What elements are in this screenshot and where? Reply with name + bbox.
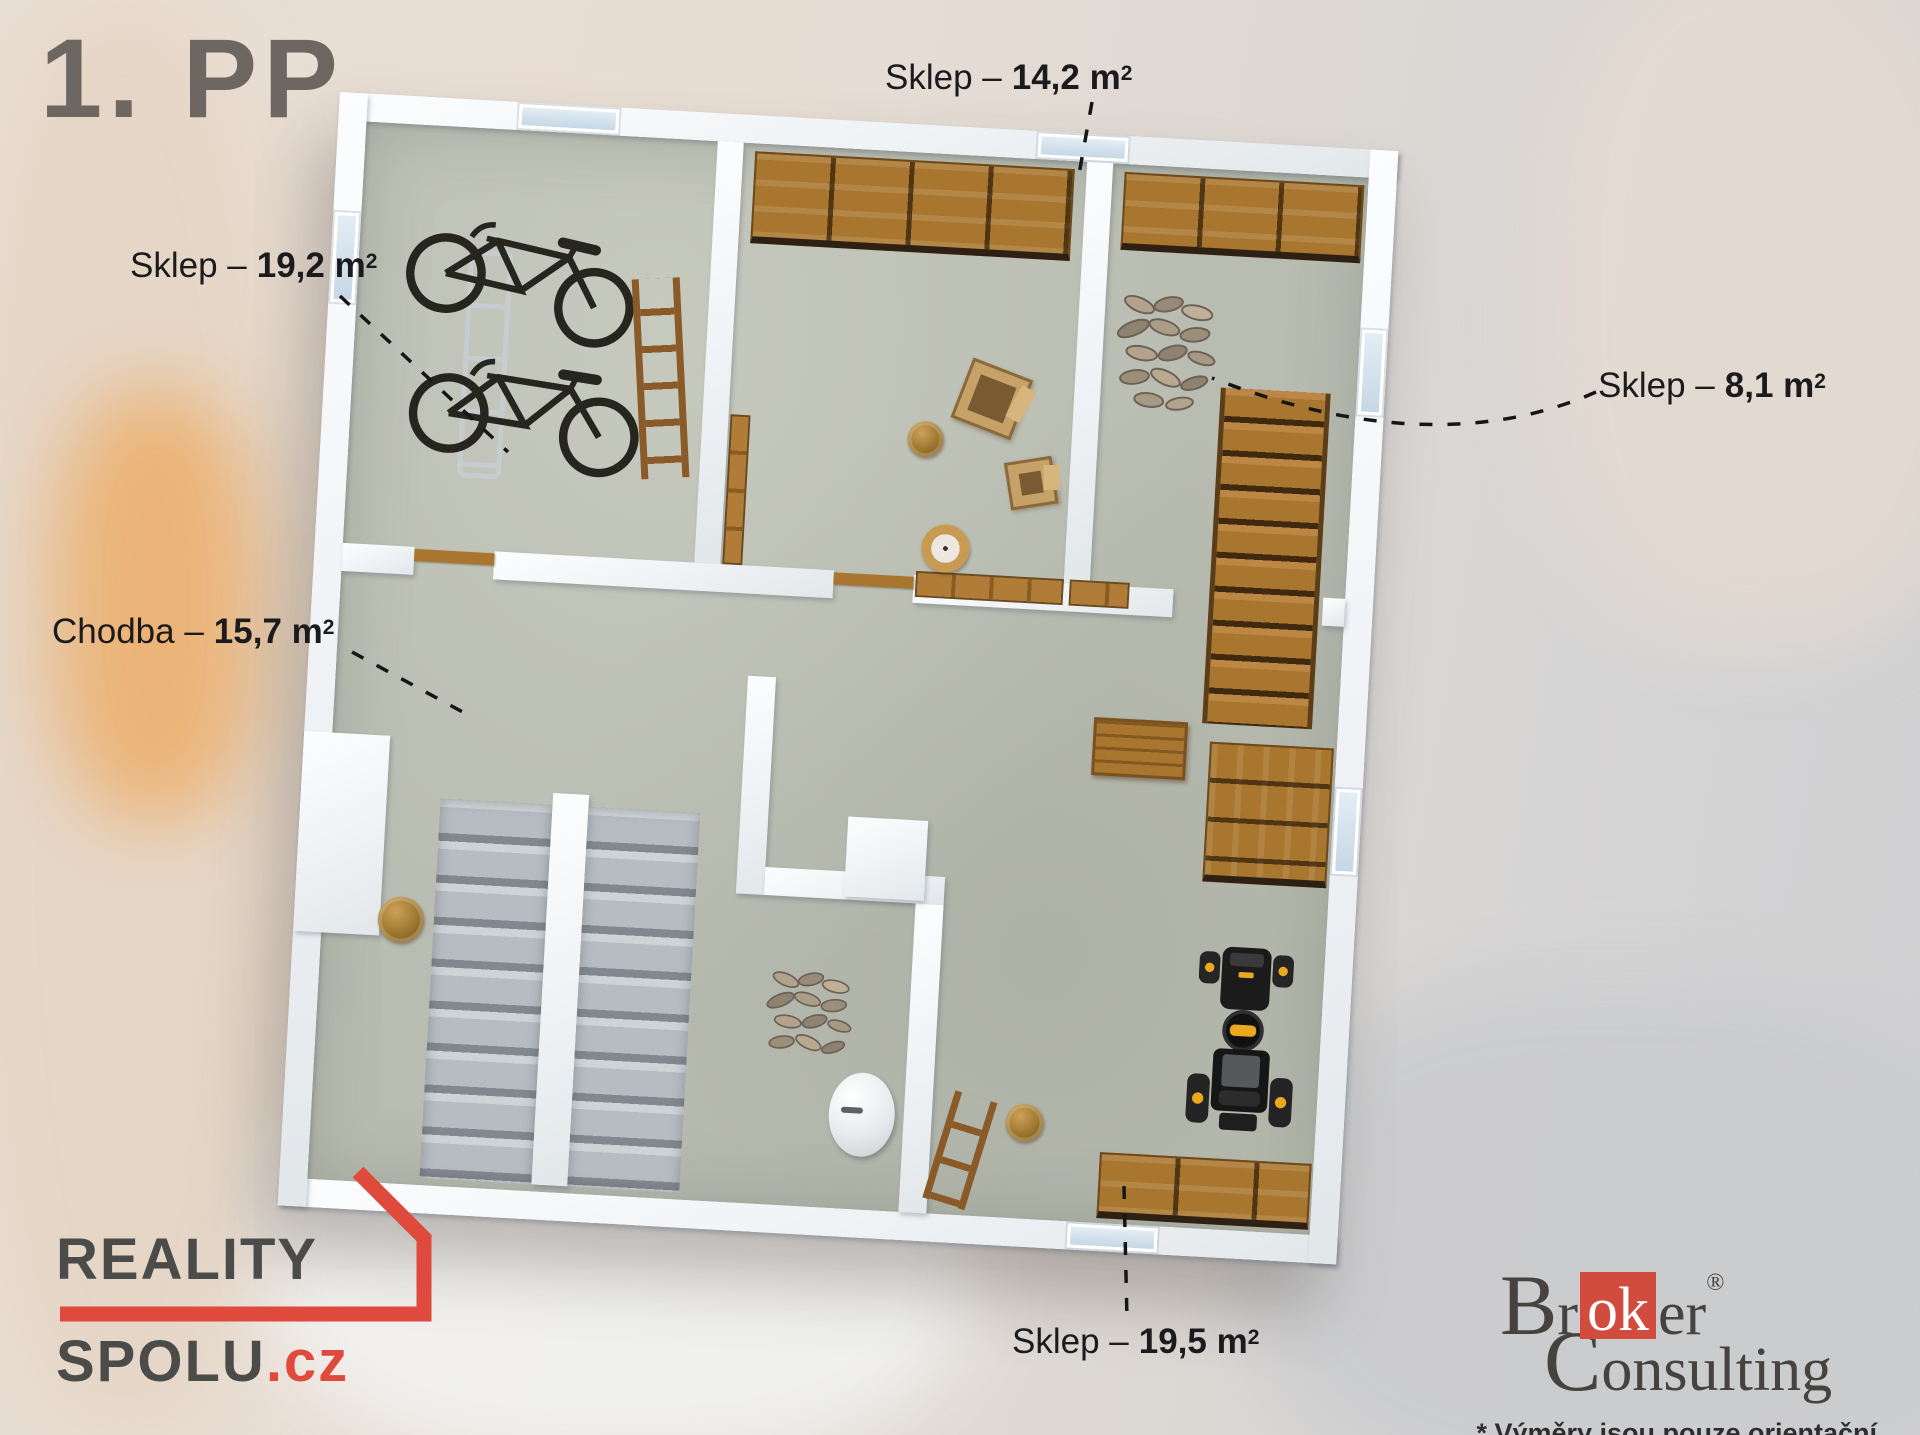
floor-plan [278, 92, 1399, 1264]
room-area-sup: 2 [1814, 370, 1826, 393]
box-flap [1043, 465, 1059, 490]
registered-mark: ® [1706, 1270, 1724, 1296]
concrete-stairs-flight [567, 807, 700, 1193]
wooden-crate [1091, 717, 1188, 780]
background-blur-beige [1540, 0, 1920, 640]
background-blur-orange [55, 390, 255, 820]
disclaimer-text: * Výměry jsou pouze orientační. [1448, 1418, 1913, 1435]
box-cavity [1019, 471, 1044, 496]
wall-middle-4 [1322, 598, 1346, 627]
concrete-stairs-flight [419, 799, 552, 1185]
reality-spolu-logo: REALITY SPOLU.cz [52, 1222, 472, 1422]
spolu-text: SPOLU [56, 1329, 266, 1394]
shelf-unit [750, 151, 1075, 261]
room-area: 14,2 m [1012, 58, 1121, 97]
room-name: Sklep – [130, 246, 247, 285]
room-label-sklep-14-2: Sklep –14,2 m2 [885, 58, 1132, 98]
room-area-sup: 2 [1248, 1326, 1260, 1349]
window [1332, 789, 1361, 875]
shelf-unit [1202, 742, 1334, 889]
spolu-wordmark: SPOLU.cz [56, 1328, 349, 1395]
floorplan-screenshot: 1. PP Sklep –19,2 m2 Sklep –14,2 m2 Skle… [0, 0, 1920, 1435]
room-name: Chodba – [52, 612, 204, 651]
shelf-unit [1096, 1152, 1311, 1230]
lawn-tractor-icon [1181, 941, 1304, 1147]
cardboard-box [1004, 456, 1059, 511]
consulting-rest: onsulting [1601, 1336, 1832, 1404]
room-area: 15,7 m [214, 612, 323, 651]
room-area-sup: 2 [1121, 62, 1133, 85]
broker-consulting-logo: Broker® Consulting * Výměry jsou pouze o… [1448, 1262, 1913, 1435]
room-area-sup: 2 [323, 616, 335, 639]
wall-middle-1 [341, 543, 414, 575]
room-label-sklep-19-2: Sklep –19,2 m2 [130, 246, 377, 286]
wooden-staircase [1202, 388, 1331, 730]
ladder-icon [632, 277, 690, 479]
tld-text: .cz [266, 1329, 349, 1394]
wall-left-jog [293, 731, 390, 935]
shelf-unit [1120, 172, 1364, 263]
chimney-block [844, 817, 928, 901]
room-area-sup: 2 [366, 250, 378, 273]
room-name: Sklep – [1598, 366, 1715, 405]
window [1067, 1223, 1158, 1252]
window [1037, 133, 1128, 162]
room-label-sklep-19-5: Sklep –19,5 m2 [1012, 1322, 1259, 1362]
room-area: 8,1 m [1725, 366, 1815, 405]
room-label-chodba: Chodba –15,7 m2 [52, 612, 334, 652]
window [1358, 329, 1387, 415]
wood-partition [1068, 580, 1129, 609]
reality-wordmark: REALITY [56, 1226, 318, 1293]
room-area: 19,2 m [257, 246, 366, 285]
broker-highlight: ok [1580, 1272, 1656, 1339]
firewood-pile [759, 955, 866, 1090]
page-title: 1. PP [40, 14, 344, 143]
room-area: 19,5 m [1139, 1322, 1248, 1361]
room-name: Sklep – [1012, 1322, 1129, 1361]
room-name: Sklep – [885, 58, 1002, 97]
room-label-sklep-8-1: Sklep –8,1 m2 [1598, 366, 1826, 406]
firewood-pile [1109, 282, 1233, 428]
